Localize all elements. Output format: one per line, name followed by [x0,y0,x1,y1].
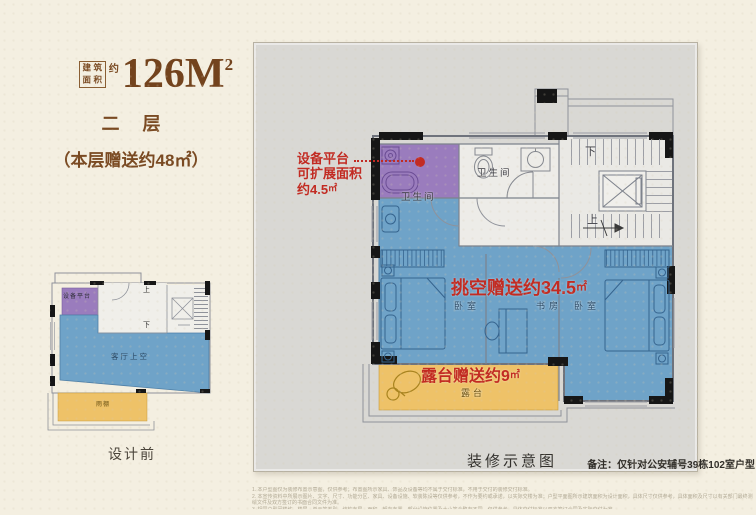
seal-char: 筑 [93,64,103,74]
annotation-leader-line [354,160,414,162]
void-bonus-unit: ㎡ [576,281,587,293]
legal-disclaimer: 1. 本户型图仅为装修布置示意图，仅供参考；布置图所示家具、饰品及设备等均不属于… [252,487,754,509]
flyer-page: 建 筑 面 积 约 126M 2 二 层 （本层赠送约48㎡） [0,0,756,515]
main-floorplan: 卫生间 卫生间 下 上 挑空赠送约34.5㎡ 卧室 书房 卧室 露台赠送约9㎡ … [349,86,675,436]
mini-plan-caption: 设计前 [32,444,232,464]
decorated-plan-panel: 卫生间 卫生间 下 上 挑空赠送约34.5㎡ 卧室 书房 卧室 露台赠送约9㎡ … [253,42,698,472]
area-value: 126M [122,54,225,94]
mini-down-label: 下 [143,322,150,329]
disclaimer-line: 2. 本宣传资料中所展示图片、文字、尺寸、功能分区、家具、设备设施、软装陈设等仅… [252,494,754,507]
area-title: 建 筑 面 积 约 126M 2 [56,54,256,94]
equipment-annotation-line2: 可扩展面积 [297,166,362,181]
equipment-annotation-line3: 约4.5㎡ [297,181,362,197]
seal-char: 面 [82,75,92,85]
bath-white-label: 卫生间 [477,169,512,179]
terrace-bonus-unit: ㎡ [510,370,520,381]
void-bonus-text: 挑空赠送约34.5 [451,278,576,298]
remark-note: 备注：仅针对公安辅号39栋102室户型 [540,456,755,471]
stairs-down-label: 下 [585,147,596,158]
floor-label: 二 层 [11,110,251,136]
disclaimer-line: 3. 相同户型因楼栋、楼层、单元等差别，结构布局、面积、朝向布置、部分设施位置及… [252,507,754,510]
mini-living-void-label: 客厅上空 [111,353,149,361]
mini-equipment-region [62,288,98,315]
bedroom-left-label: 卧室 [454,302,480,311]
void-bonus-annotation: 挑空赠送约34.5㎡ [451,279,587,297]
seal-char: 建 [82,64,92,74]
terrace-bonus-text: 露台赠送约9 [421,368,510,385]
annotation-dot [415,157,425,167]
equipment-annotation-line1: 设备平台 [297,151,362,166]
floor-bonus-label: （本层赠送约48㎡） [0,146,262,171]
bath-purple-label: 卫生间 [401,193,436,203]
mini-equipment-label: 设备平台 [63,294,91,300]
mini-canopy-label: 雨棚 [96,402,110,408]
study-label: 书房 [536,302,562,311]
mini-floorplan: 设备平台 上 下 客厅上空 雨棚 [32,272,232,440]
equipment-annotation: 设备平台 可扩展面积 约4.5㎡ [297,151,362,197]
seal-char: 积 [93,75,103,85]
stairs-up-label: 上 [587,215,598,226]
terrace-bonus-annotation: 露台赠送约9㎡ [421,369,520,385]
area-superscript: 2 [225,55,234,94]
bedroom-right-label: 卧室 [574,302,600,311]
area-seal: 建 筑 面 积 [79,61,106,88]
mini-up-label: 上 [143,287,150,294]
terrace-label: 露台 [461,389,485,398]
approx-char: 约 [109,60,119,94]
